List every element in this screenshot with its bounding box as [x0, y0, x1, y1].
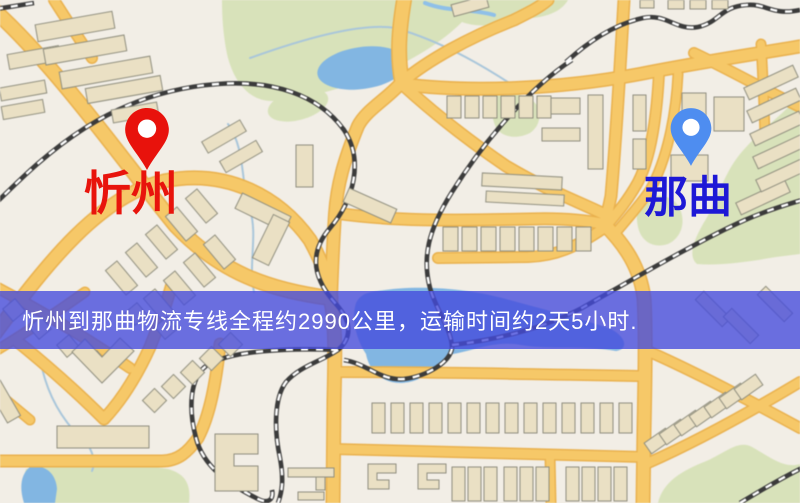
destination-pin-hole: [682, 119, 699, 136]
destination-pin-icon: [671, 108, 712, 166]
origin-pin[interactable]: [124, 106, 170, 172]
origin-label: 忻州: [84, 170, 178, 217]
route-info-text: 忻州到那曲物流专线全程约2990公里，运输时间约2天5小时.: [0, 304, 638, 336]
origin-pin-hole: [138, 119, 156, 137]
destination-pin[interactable]: [669, 107, 713, 167]
origin-pin-icon: [125, 108, 169, 170]
route-info-banner: 忻州到那曲物流专线全程约2990公里，运输时间约2天5小时.: [0, 291, 800, 349]
map-viewport[interactable]: 忻州 那曲 忻州到那曲物流专线全程约2990公里，运输时间约2天5小时.: [0, 0, 800, 503]
destination-label: 那曲: [644, 176, 732, 220]
map-canvas: [0, 0, 800, 503]
